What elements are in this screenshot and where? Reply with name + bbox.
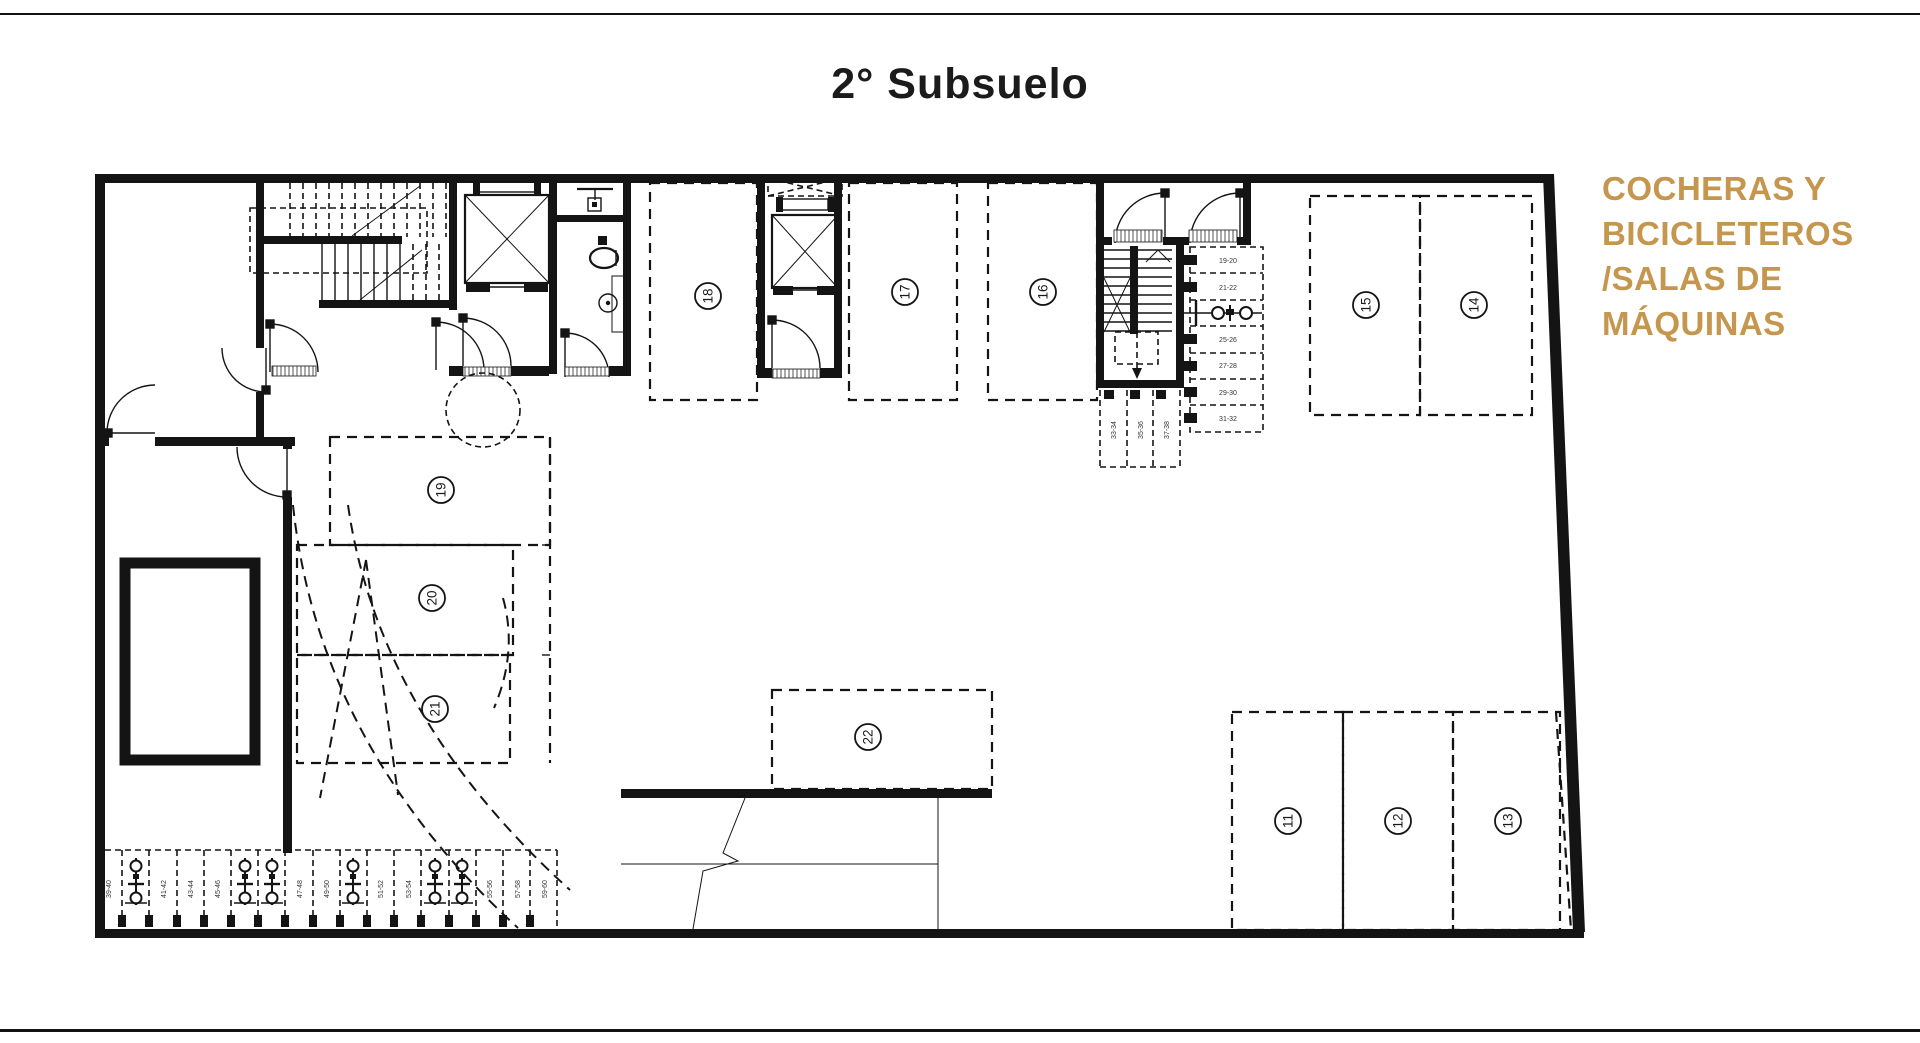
bathroom <box>577 189 627 332</box>
sink-icon <box>577 189 613 211</box>
drain-icon <box>599 294 617 312</box>
parking-stall-15: 15 <box>1310 196 1420 415</box>
rack-feet <box>118 915 534 927</box>
svg-text:39-40: 39-40 <box>106 880 113 898</box>
svg-text:37-38: 37-38 <box>1164 421 1171 439</box>
elevator-2 <box>768 178 842 295</box>
svg-text:57-58: 57-58 <box>515 880 522 898</box>
svg-text:14: 14 <box>1467 297 1482 313</box>
svg-text:19: 19 <box>434 482 449 497</box>
svg-text:47-48: 47-48 <box>297 880 304 898</box>
parking-stall-13: 13 <box>1453 712 1571 930</box>
parking-stall-22: 22 <box>772 690 992 789</box>
svg-text:11: 11 <box>1281 814 1296 828</box>
elevator-1 <box>465 178 549 292</box>
svg-text:15: 15 <box>1359 297 1374 312</box>
svg-text:53-54: 53-54 <box>406 880 413 898</box>
ramp <box>621 798 938 929</box>
svg-text:55-56: 55-56 <box>487 880 494 898</box>
svg-text:49-50: 49-50 <box>324 880 331 898</box>
parking-stall-14: 14 <box>1420 196 1532 415</box>
parking-stall-17: 17 <box>849 183 957 400</box>
stair-tower <box>1104 246 1172 379</box>
machine-room-tank <box>125 563 255 760</box>
svg-text:13: 13 <box>1501 813 1516 828</box>
svg-text:20: 20 <box>425 590 440 605</box>
parking-stall-18: 18 <box>650 183 757 400</box>
svg-text:29-30: 29-30 <box>1219 390 1237 397</box>
svg-text:45-46: 45-46 <box>215 880 222 898</box>
svg-text:27-28: 27-28 <box>1219 363 1237 370</box>
parking-stall-12: 12 <box>1343 712 1453 930</box>
bike-rack-right: 19-20 21-22 25-26 27-28 29-30 31-32 <box>1180 247 1263 432</box>
parking-stall-19: 19 <box>330 437 550 545</box>
svg-text:51-52: 51-52 <box>378 880 385 898</box>
svg-text:31-32: 31-32 <box>1219 416 1237 423</box>
svg-text:12: 12 <box>1391 813 1406 828</box>
svg-text:16: 16 <box>1036 284 1051 299</box>
parking-stalls: 18 17 16 15 14 19 20 <box>297 183 1571 930</box>
parking-stall-16: 16 <box>988 183 1097 400</box>
interior-walls <box>95 174 1251 853</box>
svg-text:19-20: 19-20 <box>1219 258 1237 265</box>
svg-text:59-60: 59-60 <box>542 880 549 898</box>
svg-text:21-22: 21-22 <box>1219 285 1237 292</box>
svg-text:25-26: 25-26 <box>1219 337 1237 344</box>
svg-text:17: 17 <box>898 284 913 299</box>
doors <box>104 189 1244 499</box>
svg-text:18: 18 <box>701 288 716 303</box>
bike-rack-bottom: 39-40 41-42 43-44 45-46 47-48 49-50 51-5… <box>105 850 557 929</box>
parking-stall-11: 11 <box>1232 712 1343 930</box>
parking-stall-20: 20 <box>297 545 513 655</box>
svg-text:33-34: 33-34 <box>1111 421 1118 439</box>
floor-plan-svg: 18 17 16 15 14 19 20 <box>0 0 1920 1043</box>
svg-text:35-36: 35-36 <box>1138 421 1145 439</box>
svg-text:43-44: 43-44 <box>188 880 195 898</box>
svg-text:21: 21 <box>428 701 443 716</box>
bike-rack-stair-side: 33-34 35-36 37-38 <box>1100 390 1180 467</box>
svg-text:22: 22 <box>861 729 876 744</box>
bicycle-icon <box>1180 300 1262 326</box>
svg-text:41-42: 41-42 <box>161 880 168 898</box>
toilet-icon <box>590 236 618 268</box>
